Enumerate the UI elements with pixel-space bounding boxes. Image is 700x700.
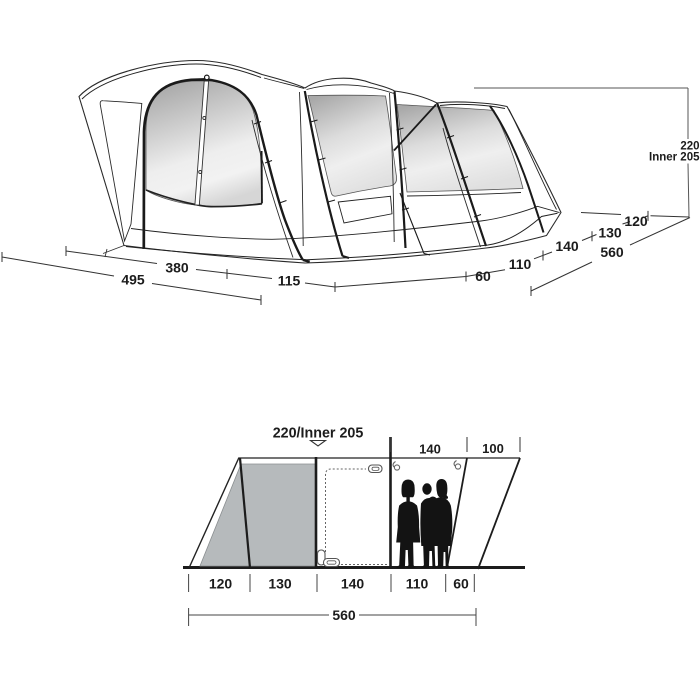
svg-text:115: 115	[278, 273, 301, 289]
svg-text:120: 120	[624, 213, 648, 229]
svg-text:495: 495	[121, 272, 145, 288]
svg-text:110: 110	[406, 576, 429, 592]
svg-text:380: 380	[165, 260, 189, 276]
svg-text:140: 140	[341, 576, 365, 592]
svg-text:110: 110	[509, 256, 532, 272]
svg-text:60: 60	[475, 268, 491, 284]
svg-text:60: 60	[453, 576, 469, 592]
svg-text:560: 560	[332, 607, 356, 623]
svg-text:220/Inner 205: 220/Inner 205	[273, 426, 364, 442]
svg-text:100: 100	[482, 441, 504, 456]
svg-text:Inner 205: Inner 205	[649, 152, 700, 164]
svg-text:140: 140	[419, 442, 441, 457]
svg-text:130: 130	[598, 225, 622, 241]
svg-text:120: 120	[209, 576, 233, 592]
svg-text:560: 560	[600, 244, 624, 260]
svg-text:130: 130	[268, 576, 292, 592]
svg-text:140: 140	[555, 238, 579, 254]
